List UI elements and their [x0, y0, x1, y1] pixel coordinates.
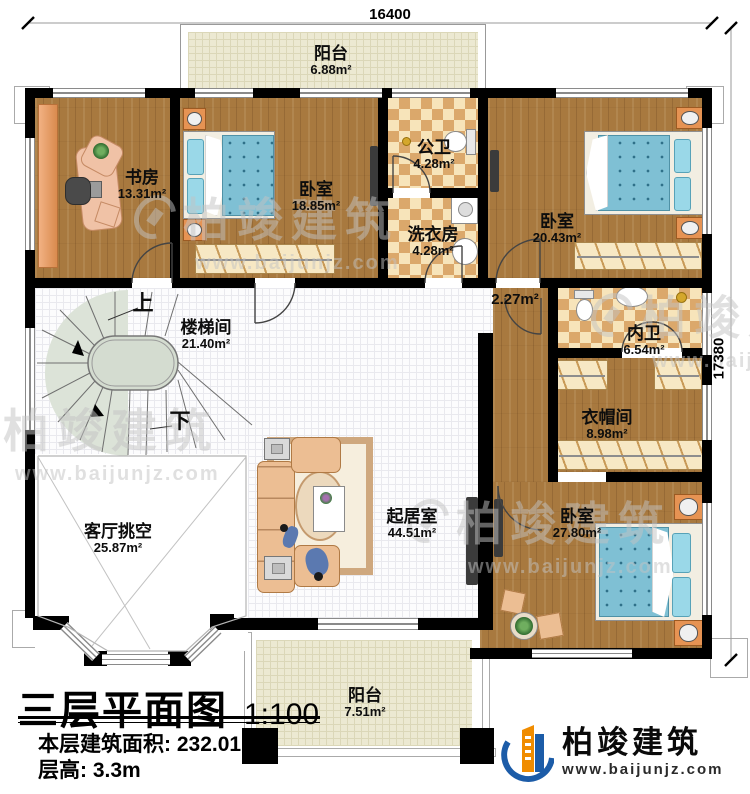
- stool: [536, 612, 564, 640]
- stair-up-label: 上: [133, 292, 154, 316]
- balcony-door: [300, 88, 382, 98]
- window: [25, 138, 35, 250]
- window: [25, 328, 35, 430]
- wall: [462, 278, 496, 288]
- potted-plant: [515, 617, 533, 635]
- bed1-nightstand: [183, 219, 206, 241]
- wall: [210, 614, 234, 630]
- room-label-stairwell: 楼梯间 21.40m²: [181, 318, 232, 352]
- room-label-living: 起居室 44.51m²: [387, 507, 438, 541]
- floor-height-value: 3.3m: [93, 759, 141, 782]
- bed3-pillow: [672, 533, 691, 573]
- toilet-tank: [574, 290, 594, 299]
- corridor-floor: [493, 288, 548, 482]
- toilet-tank: [466, 129, 476, 155]
- closet: [556, 360, 608, 390]
- floor-drain: [402, 137, 411, 146]
- closet: [556, 440, 704, 470]
- living-tv: [466, 497, 478, 585]
- bed2-tv: [490, 150, 499, 192]
- dimension-width: 16400: [360, 6, 420, 23]
- window: [532, 649, 632, 658]
- stair-down-label: 下: [170, 410, 191, 434]
- wall: [33, 616, 69, 630]
- office-chair: [65, 177, 91, 205]
- bed3-nightstand: [674, 494, 703, 520]
- room-label-void: 客厅挑空 25.87m²: [84, 522, 152, 556]
- toilet-bowl: [576, 299, 593, 321]
- study-shelf: [38, 104, 58, 268]
- room-label-study: 书房 13.31m²: [118, 168, 166, 202]
- watermark-logo-icon: [0, 398, 5, 459]
- bed2-nightstand: [676, 217, 703, 239]
- bed1-tv: [370, 146, 378, 206]
- wall: [606, 472, 712, 482]
- desk-plant: [93, 143, 109, 159]
- window: [702, 503, 712, 615]
- brand-logo-icon: [498, 720, 554, 784]
- floor-area-value: 232.01m²: [177, 733, 267, 756]
- person-head: [314, 572, 323, 581]
- room-label-cloakroom: 衣帽间 8.98m²: [582, 408, 633, 442]
- wall: [168, 651, 191, 666]
- window: [53, 88, 145, 98]
- floor-area-label: 本层建筑面积:: [38, 733, 171, 756]
- bay-window: [102, 654, 170, 665]
- floor-height-row: 层高: 3.3m: [38, 754, 141, 784]
- wall: [170, 98, 180, 278]
- wall: [172, 278, 255, 288]
- bed1-duvet: [222, 135, 274, 216]
- room-label-bedroom2: 卧室 20.43m²: [533, 212, 581, 246]
- room-label-bedroom3: 卧室 27.80m²: [553, 507, 601, 541]
- window: [556, 88, 688, 98]
- washer-drum: [458, 202, 473, 217]
- brand-name: 柏竣建筑: [562, 727, 723, 758]
- wall: [378, 98, 388, 278]
- window: [195, 88, 253, 98]
- wall: [548, 472, 558, 482]
- wall: [478, 98, 488, 288]
- bed2-wardrobe: [574, 242, 702, 270]
- bath-sink: [616, 286, 648, 307]
- room-label-laundry: 洗衣房 4.28m²: [408, 225, 459, 259]
- window: [392, 88, 470, 98]
- room-label-balcony-bottom: 阳台 7.51m²: [344, 686, 385, 720]
- bed2-nightstand: [676, 107, 703, 129]
- shower-head: [676, 292, 687, 303]
- dimension-height: 17380: [711, 330, 728, 388]
- balcony-pillar: [460, 728, 494, 764]
- bed3-nightstand: [674, 620, 703, 646]
- bed2-pillow: [674, 177, 691, 211]
- hall-area-label: 2.27m²: [491, 292, 539, 309]
- wall: [25, 278, 132, 288]
- wall: [540, 278, 712, 288]
- wall: [548, 348, 622, 358]
- wall: [548, 288, 558, 472]
- window: [702, 128, 712, 234]
- closet: [654, 360, 702, 390]
- brand-logo: 柏竣建筑 www.baijunjz.com: [498, 720, 723, 784]
- lamp-table: [264, 556, 292, 580]
- plan-scale: 1:100: [244, 698, 319, 732]
- wall: [430, 188, 478, 198]
- wall: [478, 333, 493, 630]
- room-label-balcony-top: 阳台 6.88m²: [310, 44, 351, 78]
- title-underline: [18, 716, 320, 723]
- room-label-public-bath: 公卫 4.28m²: [413, 138, 454, 172]
- wall: [295, 278, 425, 288]
- bed1-pillow: [187, 178, 204, 214]
- table-flowers: [320, 492, 332, 504]
- wall: [388, 188, 393, 198]
- pilaster-bottom-right: [710, 638, 748, 678]
- lamp-table: [264, 438, 290, 460]
- bed2-duvet: [598, 135, 670, 211]
- armchair: [291, 437, 341, 473]
- bed3-tv: [494, 499, 503, 557]
- floor-height-label: 层高:: [38, 759, 87, 782]
- room-label-bedroom1: 卧室 18.85m²: [292, 180, 340, 214]
- bed1-nightstand: [183, 108, 206, 130]
- bed3-pillow: [672, 577, 691, 617]
- bed1-pillow: [187, 139, 204, 175]
- floor-plan: 柏竣建筑 www.baijunjz.com 柏竣建筑 www.baijunjz.…: [0, 0, 750, 794]
- brand-url: www.baijunjz.com: [562, 762, 723, 777]
- room-label-master-bath: 内卫 6.54m²: [623, 324, 664, 358]
- balcony-rail-bottom: [244, 748, 496, 757]
- balcony-slider: [318, 618, 418, 630]
- bed1-wardrobe: [195, 244, 335, 274]
- bed2-pillow: [674, 139, 691, 173]
- person-head: [280, 524, 288, 532]
- window: [702, 385, 712, 440]
